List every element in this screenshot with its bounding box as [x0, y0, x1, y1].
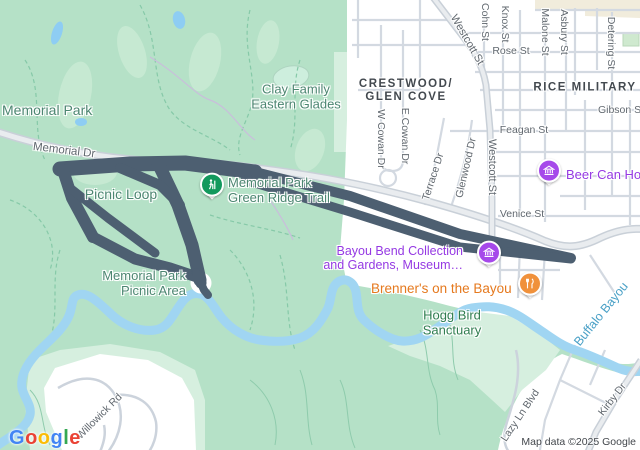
beer-can-house-marker[interactable]: [536, 159, 562, 189]
label-asbury-st: Asbury St: [557, 9, 569, 55]
label-bayou-bend[interactable]: Bayou Bend Collectionand Gardens, Museum…: [320, 244, 463, 272]
label-memorial-park: Memorial Park: [2, 103, 92, 119]
label-gibson-st: Gibson St: [598, 105, 640, 117]
museum-icon: [477, 241, 501, 265]
restaurant-icon: [518, 272, 542, 296]
label-picnic-area[interactable]: Memorial ParkPicnic Area: [60, 269, 186, 298]
map-tiles: [0, 0, 640, 450]
label-picnic-loop: Picnic Loop: [85, 187, 157, 203]
label-westcott-st-south: Westcott St: [486, 139, 498, 195]
label-w-cowan-dr: W Cowan Dr: [374, 109, 386, 169]
google-logo[interactable]: Google: [9, 427, 81, 450]
label-venice-st: Venice St: [500, 209, 544, 221]
label-green-ridge-trail[interactable]: Memorial ParkGreen Ridge Trail: [228, 176, 330, 205]
label-rice-military: RICE MILITARY: [533, 82, 636, 95]
bayou-bend-marker[interactable]: [476, 241, 502, 271]
label-rose-st: Rose St: [492, 46, 529, 58]
label-feagan-st: Feagan St: [500, 125, 548, 137]
map-attribution: Map data ©2025 Google: [521, 436, 636, 448]
hiker-icon: [200, 173, 224, 197]
label-beer-can-house[interactable]: Beer Can House: [566, 168, 640, 183]
brenners-marker[interactable]: [517, 272, 543, 302]
label-knox-st: Knox St: [498, 6, 510, 43]
label-clay-family: Clay FamilyEastern Glades: [251, 82, 341, 111]
label-cohn-st: Cohn St: [478, 3, 490, 41]
label-hogg-bird-sanctuary[interactable]: Hogg BirdSanctuary: [423, 308, 482, 337]
label-e-cowan-dr: E Cowan Dr: [398, 108, 410, 165]
label-brenners[interactable]: Brenner's on the Bayou: [371, 281, 512, 296]
label-crestwood-glen-cove: CRESTWOOD/GLEN COVE: [359, 78, 453, 104]
label-detering-st: Detering St: [604, 17, 616, 70]
map-canvas[interactable]: Memorial Park Clay FamilyEastern Glades …: [0, 0, 640, 450]
label-malone-st: Malone St: [538, 8, 550, 55]
museum-icon: [537, 159, 561, 183]
green-ridge-trail-marker[interactable]: [199, 173, 225, 203]
